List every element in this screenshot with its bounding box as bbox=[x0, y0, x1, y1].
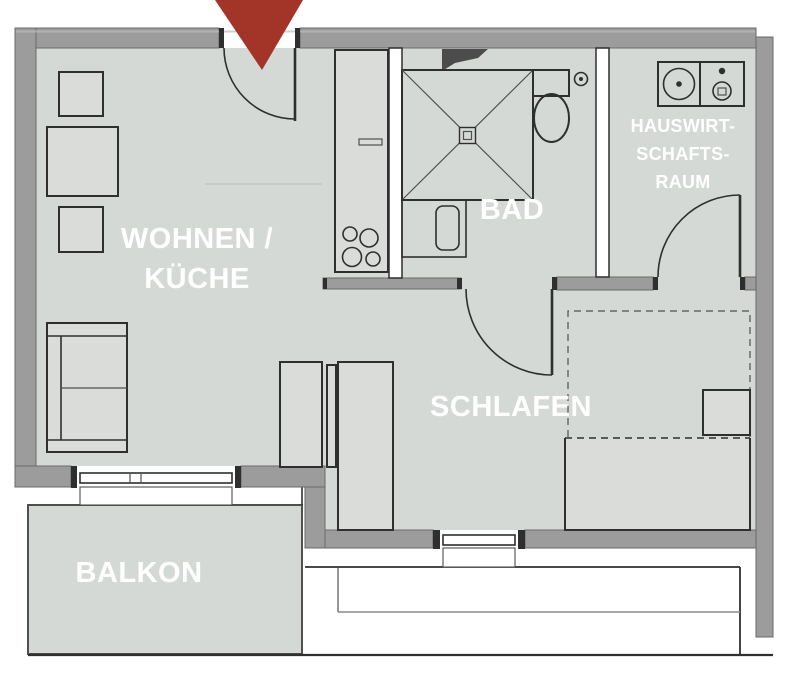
kitchen-counter bbox=[335, 50, 388, 272]
room-label-balcony: BALKON bbox=[39, 557, 239, 590]
wardrobe-icon bbox=[338, 362, 393, 530]
dining-table-icon bbox=[47, 127, 118, 196]
nightstand-icon bbox=[703, 390, 750, 435]
utility-room-line2: SCHAFTS- bbox=[608, 140, 758, 168]
sofa-icon bbox=[47, 323, 127, 452]
floor-plan: WOHNEN / KÜCHE BAD HAUSWIRT- SCHAFTS- RA… bbox=[0, 0, 800, 688]
room-label-bathroom: BAD bbox=[452, 194, 572, 227]
bedroom-window bbox=[433, 530, 525, 567]
bathroom-left-wall bbox=[389, 48, 402, 278]
utility-room-line3: RAUM bbox=[608, 168, 758, 196]
sideboard-icon bbox=[280, 362, 322, 467]
bed-icon bbox=[565, 438, 750, 530]
utility-room-line1: HAUSWIRT- bbox=[608, 112, 758, 140]
living-kitchen-line1: WOHNEN / bbox=[87, 219, 307, 259]
living-kitchen-line2: KÜCHE bbox=[87, 259, 307, 299]
kitchen-unit bbox=[335, 50, 388, 272]
chair-icon bbox=[59, 72, 103, 116]
room-label-utility-room: HAUSWIRT- SCHAFTS- RAUM bbox=[608, 112, 758, 196]
room-label-bedroom: SCHLAFEN bbox=[391, 391, 631, 424]
partition-shelf-icon bbox=[327, 365, 336, 467]
balcony-window bbox=[71, 466, 241, 505]
room-label-living-kitchen: WOHNEN / KÜCHE bbox=[87, 219, 307, 299]
